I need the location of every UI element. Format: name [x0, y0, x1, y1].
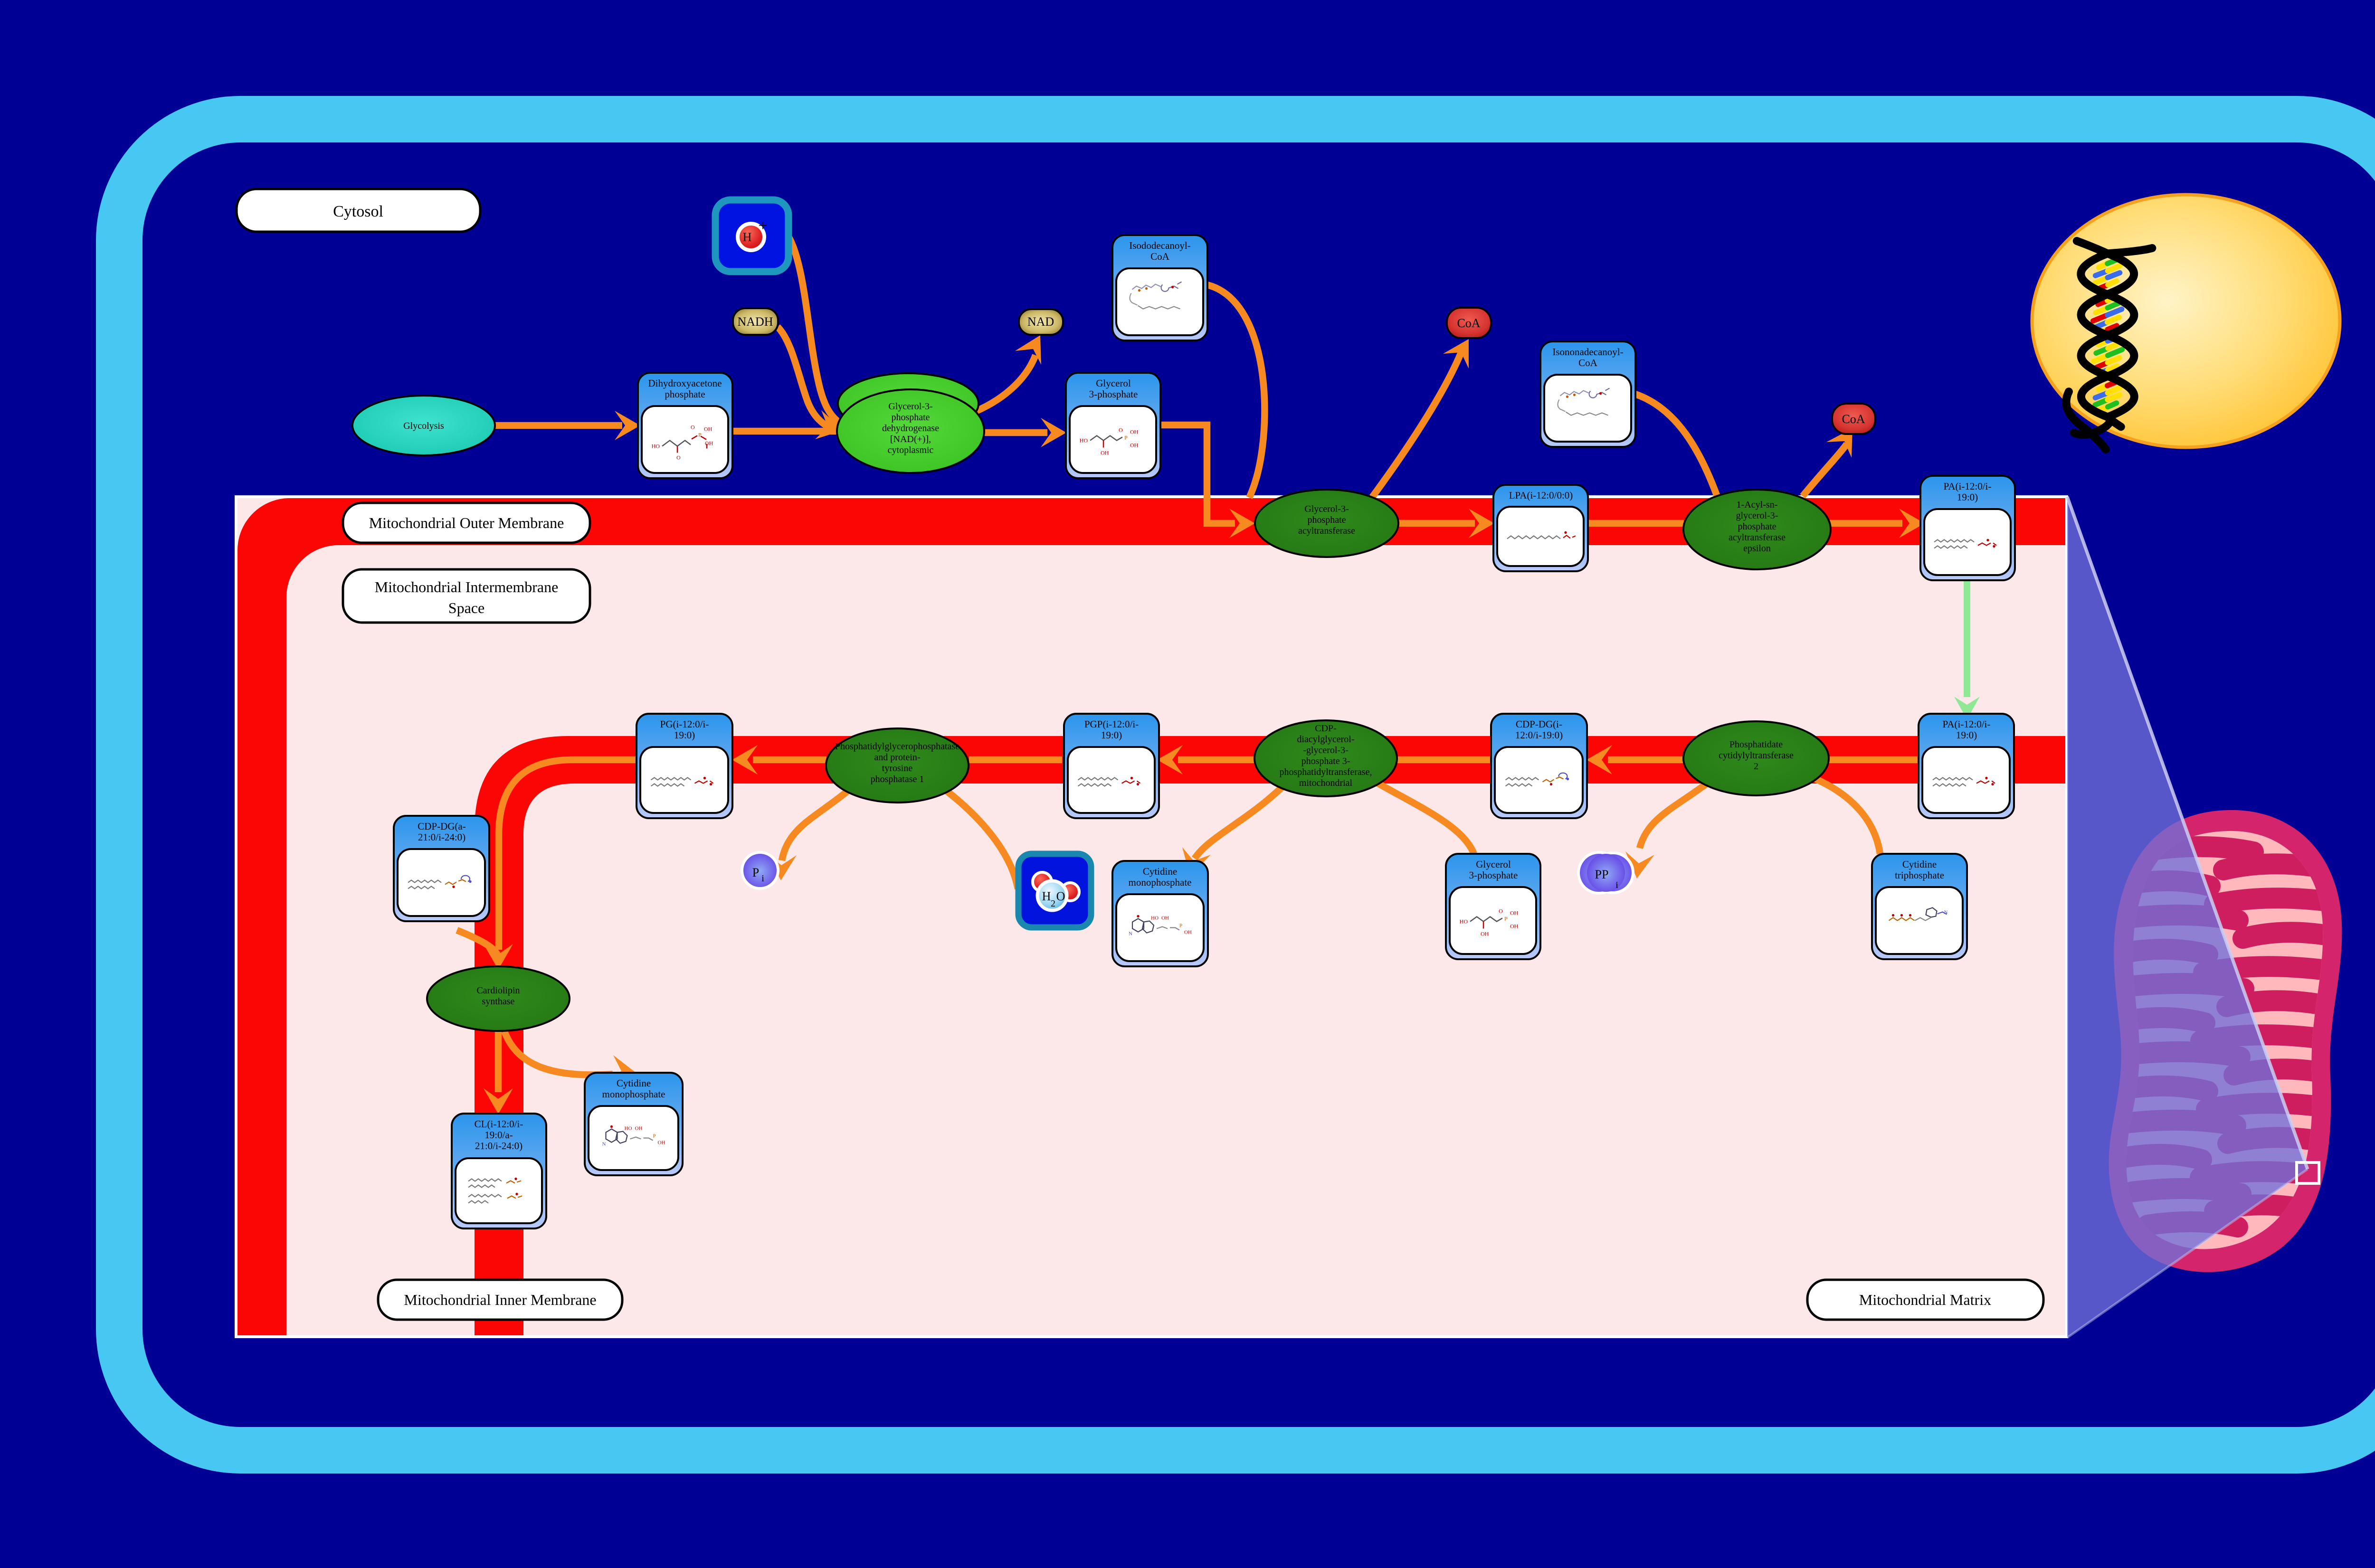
svg-text:glycerol-3-: glycerol-3- — [1736, 510, 1778, 521]
svg-text:OH: OH — [1184, 930, 1192, 935]
svg-text:phosphate: phosphate — [891, 412, 930, 423]
svg-text:OH: OH — [1481, 931, 1489, 937]
svg-text:19:0/a-: 19:0/a- — [484, 1129, 513, 1141]
svg-text:N: N — [1944, 910, 1948, 916]
svg-text:+: + — [758, 217, 767, 235]
svg-text:OH: OH — [1161, 916, 1169, 921]
svg-text:HO: HO — [1080, 437, 1088, 444]
svg-text:CDP-DG(a-: CDP-DG(a- — [418, 821, 465, 832]
svg-text:acyltransferase: acyltransferase — [1298, 526, 1355, 536]
svg-text:OH: OH — [704, 426, 712, 433]
svg-text:HO: HO — [1460, 918, 1468, 925]
svg-text:triphosphate: triphosphate — [1895, 869, 1944, 881]
svg-text:PGP(i-12:0/i-: PGP(i-12:0/i- — [1084, 718, 1139, 730]
svg-text:Cytosol: Cytosol — [333, 203, 383, 220]
svg-text:Dihydroxyacetone: Dihydroxyacetone — [648, 378, 722, 389]
svg-text:PA(i-12:0/i-: PA(i-12:0/i- — [1943, 718, 1991, 730]
svg-text:P: P — [653, 1133, 656, 1139]
svg-text:OH: OH — [1510, 923, 1519, 930]
svg-text:CoA: CoA — [1842, 412, 1865, 426]
svg-text:OH: OH — [705, 440, 713, 447]
svg-text:O: O — [1119, 427, 1123, 434]
svg-text:3-phosphate: 3-phosphate — [1469, 869, 1518, 881]
svg-text:19:0): 19:0) — [1956, 729, 1977, 741]
svg-text:Glycerol-3-: Glycerol-3- — [1304, 504, 1349, 514]
svg-text:Isononadecanoyl-: Isononadecanoyl- — [1552, 346, 1623, 358]
svg-text:P: P — [1504, 916, 1508, 922]
svg-text:3-phosphate: 3-phosphate — [1089, 388, 1138, 400]
svg-text:synthase: synthase — [482, 996, 515, 1007]
svg-text:Glycolysis: Glycolysis — [403, 421, 444, 431]
svg-text:21:0/i-24:0): 21:0/i-24:0) — [475, 1140, 522, 1152]
svg-text:LPA(i-12:0/0:0): LPA(i-12:0/0:0) — [1509, 490, 1573, 501]
svg-text:Glycerol: Glycerol — [1476, 859, 1511, 870]
svg-text:CDP-: CDP- — [1315, 723, 1337, 734]
svg-text:H: H — [1042, 889, 1051, 903]
svg-text:19:0): 19:0) — [1957, 491, 1978, 503]
svg-text:phosphate: phosphate — [665, 388, 705, 400]
svg-text:N: N — [602, 1142, 606, 1147]
svg-text:phosphatase 1: phosphatase 1 — [871, 774, 924, 784]
svg-text:P: P — [752, 866, 759, 879]
svg-text:19:0): 19:0) — [674, 729, 695, 741]
svg-text:HO: HO — [1151, 916, 1159, 921]
svg-text:1-Acyl-sn-: 1-Acyl-sn- — [1737, 500, 1778, 510]
svg-text:O: O — [676, 454, 681, 461]
svg-text:CL(i-12:0/i-: CL(i-12:0/i- — [475, 1118, 523, 1130]
svg-text:epsilon: epsilon — [1743, 543, 1771, 554]
svg-text:and protein-: and protein- — [874, 752, 920, 763]
svg-text:PG(i-12:0/i-: PG(i-12:0/i- — [660, 718, 709, 730]
svg-text:PA(i-12:0/i-: PA(i-12:0/i- — [1944, 481, 1992, 492]
svg-text:tyrosine: tyrosine — [882, 763, 913, 774]
svg-text:Phosphatidylglycerophosphatase: Phosphatidylglycerophosphatase — [835, 741, 959, 752]
svg-text:Glycerol-3-: Glycerol-3- — [888, 401, 932, 412]
svg-text:cytoplasmic: cytoplasmic — [888, 445, 934, 455]
svg-text:diacylglycerol-: diacylglycerol- — [1297, 734, 1354, 745]
svg-text:OH: OH — [1510, 910, 1519, 916]
svg-text:PP: PP — [1595, 868, 1609, 881]
svg-text:acyltransferase: acyltransferase — [1729, 532, 1786, 543]
svg-text:Phosphatidate: Phosphatidate — [1729, 739, 1783, 750]
svg-text:-glycerol-3-: -glycerol-3- — [1303, 745, 1349, 756]
svg-text:OH: OH — [1130, 442, 1139, 449]
svg-text:OH: OH — [635, 1126, 643, 1132]
svg-text:HO: HO — [652, 443, 660, 450]
svg-text:H: H — [743, 230, 752, 244]
svg-text:2: 2 — [1754, 761, 1758, 772]
svg-text:Mitochondrial Outer Membrane: Mitochondrial Outer Membrane — [369, 514, 564, 531]
svg-text:phosphate: phosphate — [1307, 515, 1346, 525]
svg-text:i: i — [1615, 880, 1618, 890]
svg-text:Cytidine: Cytidine — [617, 1077, 651, 1089]
svg-text:OH: OH — [658, 1140, 665, 1146]
svg-text:monophosphate: monophosphate — [602, 1088, 665, 1100]
svg-text:P: P — [698, 432, 702, 438]
svg-text:O: O — [1056, 889, 1065, 903]
svg-text:Glycerol: Glycerol — [1096, 378, 1131, 389]
svg-text:Cytidine: Cytidine — [1143, 866, 1177, 877]
svg-text:Mitochondrial Inner Membrane: Mitochondrial Inner Membrane — [404, 1291, 596, 1308]
svg-text:HO: HO — [625, 1126, 632, 1132]
svg-text:dehydrogenase: dehydrogenase — [882, 423, 939, 434]
svg-text:Cardiolipin: Cardiolipin — [476, 985, 520, 996]
svg-text:CoA: CoA — [1457, 316, 1480, 330]
svg-text:O: O — [1499, 908, 1503, 915]
svg-text:21:0/i-24:0): 21:0/i-24:0) — [418, 831, 465, 843]
svg-text:phosphate 3-: phosphate 3- — [1301, 756, 1350, 766]
svg-text:CoA: CoA — [1578, 357, 1598, 368]
svg-text:i: i — [761, 873, 764, 884]
svg-text:NAD: NAD — [1027, 315, 1054, 329]
svg-text:phosphate: phosphate — [1738, 521, 1776, 532]
svg-text:OH: OH — [1101, 450, 1109, 456]
svg-text:cytidylyltransferase: cytidylyltransferase — [1719, 750, 1794, 761]
svg-text:O: O — [691, 424, 695, 431]
svg-text:monophosphate: monophosphate — [1129, 877, 1192, 888]
svg-text:CoA: CoA — [1150, 251, 1170, 262]
svg-text:N: N — [1129, 931, 1132, 937]
svg-text:CDP-DG(i-: CDP-DG(i- — [1516, 718, 1562, 730]
svg-text:mitochondrial: mitochondrial — [1299, 778, 1353, 788]
svg-text:12:0/i-19:0): 12:0/i-19:0) — [1515, 729, 1563, 741]
svg-text:P: P — [1179, 923, 1182, 929]
svg-text:Isododecanoyl-: Isododecanoyl- — [1129, 240, 1190, 251]
svg-text:Space: Space — [448, 599, 484, 616]
svg-text:NADH: NADH — [737, 315, 773, 329]
svg-text:[NAD(+)],: [NAD(+)], — [890, 434, 931, 444]
svg-text:P: P — [1124, 435, 1128, 441]
svg-text:phosphatidyltransferase,: phosphatidyltransferase, — [1280, 767, 1372, 777]
svg-text:Mitochondrial Matrix: Mitochondrial Matrix — [1859, 1291, 1991, 1308]
svg-text:2: 2 — [1051, 898, 1055, 909]
svg-text:OH: OH — [1130, 429, 1139, 435]
svg-text:Mitochondrial Intermembrane: Mitochondrial Intermembrane — [375, 578, 559, 595]
svg-text:Cytidine: Cytidine — [1902, 859, 1937, 870]
svg-text:19:0): 19:0) — [1101, 729, 1122, 741]
